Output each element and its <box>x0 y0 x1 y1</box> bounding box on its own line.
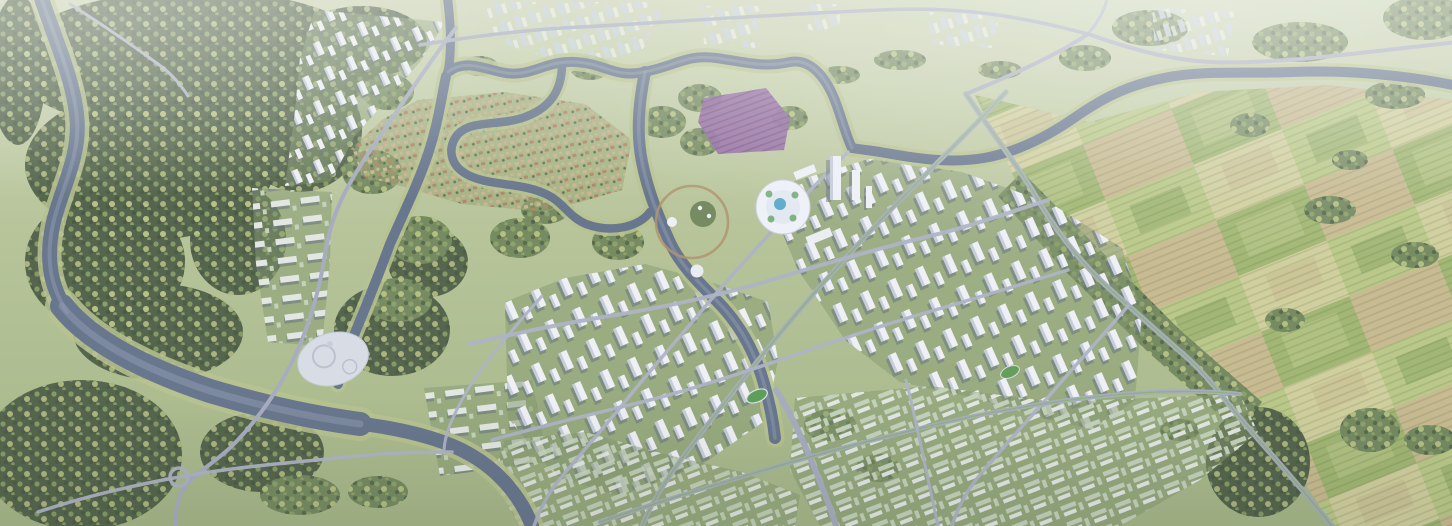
haze-overlay <box>0 0 1452 526</box>
aerial-render-svg <box>0 0 1452 526</box>
vignette <box>0 0 1452 526</box>
aerial-city-render <box>0 0 1452 526</box>
